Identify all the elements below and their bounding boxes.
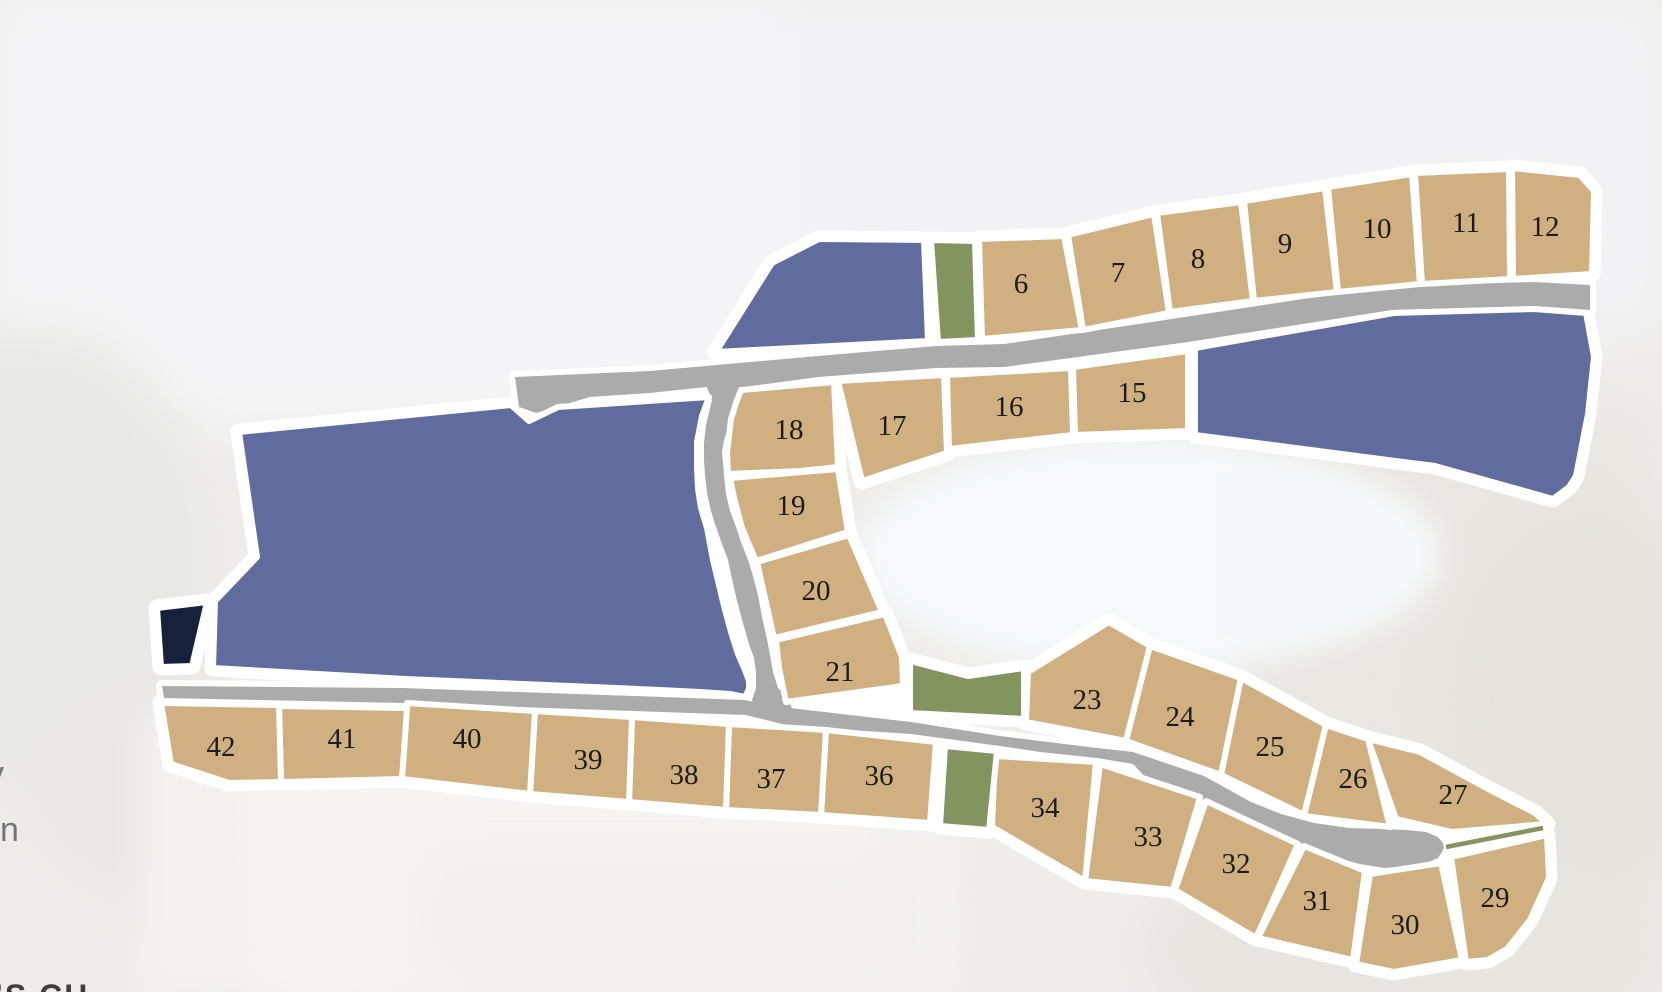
svg-text:24: 24 (1166, 701, 1196, 733)
svg-text:34: 34 (1031, 792, 1061, 824)
svg-text:39: 39 (574, 744, 603, 776)
svg-text:23: 23 (1073, 684, 1102, 716)
svg-text:15: 15 (1118, 377, 1147, 409)
svg-text:27: 27 (1439, 779, 1468, 811)
svg-text:40: 40 (453, 723, 482, 755)
svg-text:17: 17 (878, 410, 907, 442)
svg-text:18: 18 (775, 414, 804, 446)
svg-text:7: 7 (1111, 257, 1126, 289)
svg-text:9: 9 (1278, 228, 1293, 260)
svg-text:25: 25 (1256, 731, 1285, 763)
svg-text:n: n (0, 811, 19, 849)
svg-text:31: 31 (1303, 885, 1332, 917)
svg-text:11: 11 (1452, 207, 1480, 239)
svg-text:20: 20 (802, 575, 831, 607)
svg-text:19: 19 (777, 490, 806, 522)
svg-text:21: 21 (826, 656, 855, 688)
svg-text:41: 41 (328, 723, 357, 755)
svg-text:10: 10 (1363, 213, 1392, 245)
svg-text:29: 29 (1481, 882, 1510, 914)
svg-text:y: y (0, 755, 4, 793)
svg-text:12: 12 (1531, 211, 1560, 243)
svg-text:8: 8 (1191, 243, 1206, 275)
svg-text:6: 6 (1014, 268, 1029, 300)
svg-text:37: 37 (757, 763, 786, 795)
svg-text:33: 33 (1134, 821, 1163, 853)
svg-text:16: 16 (995, 391, 1024, 423)
svg-text:’S CH: ’S CH (0, 978, 89, 992)
svg-text:38: 38 (670, 759, 699, 791)
svg-text:30: 30 (1391, 909, 1420, 941)
svg-text:36: 36 (865, 760, 894, 792)
svg-text:42: 42 (207, 731, 236, 763)
svg-text:32: 32 (1222, 848, 1251, 880)
svg-text:26: 26 (1339, 763, 1368, 795)
